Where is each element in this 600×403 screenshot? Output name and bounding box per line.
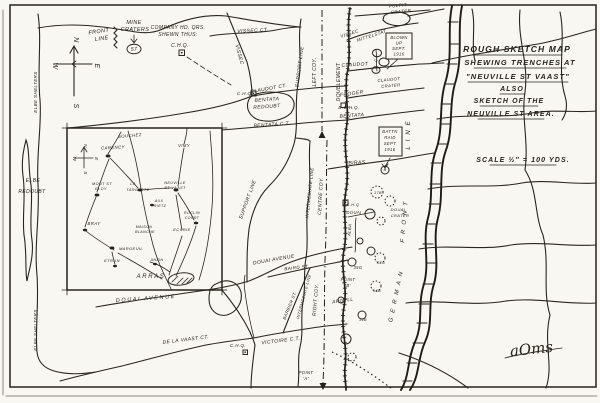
label-inset-roclincourt-2: COURT — [185, 216, 200, 220]
label-inset-maison-blanche-2: BLANCHE — [135, 230, 155, 234]
label-legend-company-hq-1: COMPANY HD. QRS. — [151, 25, 206, 31]
label-battn-raid-1: BATTN — [382, 129, 398, 134]
label-compass-s: S — [72, 103, 79, 108]
label-legend-front-line-2: LINE — [95, 35, 110, 43]
label-compass-n: N — [72, 37, 79, 43]
dotted-track — [332, 352, 393, 390]
label-pulpit-crater-2: CRATER — [390, 8, 411, 15]
label-inset-compass-e: E — [94, 157, 99, 161]
label-inset-compass-s: S — [83, 171, 88, 174]
label-inset-la-targette-2: TARGETTE — [126, 188, 149, 192]
compass-rose — [56, 46, 92, 96]
label-legend-chq: C.H.Q. — [171, 43, 189, 49]
label-inset-vimy: VIMY — [178, 143, 191, 148]
label-chq-douai: C.H.Q — [346, 202, 359, 207]
label-bentata-redoubt-2: REDOUBT — [253, 103, 281, 111]
label-crater-b: B — [383, 167, 386, 172]
label-battn-raid-3: SEPT — [384, 141, 397, 146]
label-crater-34b: 34B — [359, 318, 367, 322]
label-german-line-line: LINE — [406, 116, 412, 149]
label-point-a-2: 'A' — [303, 376, 309, 381]
label-title-2: SHEWING TRENCHES AT — [464, 58, 576, 67]
label-title-4: ALSO — [499, 86, 524, 93]
label-mittelstat: MITTELSTAT — [356, 28, 388, 43]
label-bentata-ct: BENTATA C.T. — [253, 121, 290, 130]
arras-highway — [128, 131, 171, 289]
label-victoire-ct: VICTOIRE C.T. — [261, 336, 301, 347]
label-blown-up-4: 1916 — [394, 52, 405, 57]
elbe-redoubt-outline — [22, 140, 32, 281]
label-inset-maroeuil: MAROEUIL — [119, 246, 143, 251]
label-douai: DOUAI — [346, 210, 362, 215]
label-legend-mine-craters-1: MINE — [126, 20, 141, 26]
label-inset-la-targette-1: LA — [130, 182, 136, 186]
label-inset-bray: BRAY — [88, 221, 102, 226]
enclosure-loop — [209, 281, 241, 315]
label-german-line-german: GERMAN — [388, 267, 406, 323]
label-title-1: ROUGH SKETCH MAP — [463, 44, 571, 54]
label-inset-arras: ARRAS — [136, 274, 166, 280]
label-title-6: NEUVILLE ST AREA. — [467, 111, 555, 118]
label-bentata-front: BENTATA — [339, 112, 364, 120]
label-inset-compass-n: N — [83, 144, 88, 148]
label-inset-compass-w: W — [72, 157, 77, 162]
chq-pointer-dashed — [187, 57, 231, 85]
label-elbe-shelters-1: ELBE SHELTERS — [33, 71, 38, 112]
map-labels: FRONTLINEMINECRATERS57COMPANY HD. QRS.SH… — [18, 2, 576, 381]
label-inset-roclincourt-1: ROCLIN — [184, 211, 200, 215]
label-title-scale: SCALE ½″ = 100 YDS. — [476, 156, 570, 164]
label-inset-neuville-2: ST VAAST — [164, 186, 186, 190]
label-point-b-1: POINT — [341, 277, 356, 282]
label-claudot-crater-2: CRATER — [381, 82, 401, 89]
label-compass-w: W — [51, 62, 58, 70]
coy-boundary-2 — [323, 140, 327, 383]
label-douai-crater-1: DOUAI — [391, 207, 406, 212]
label-inset-souchez: SOUCHEZ — [118, 132, 142, 139]
label-inset-mont-st-eloy-1: MONT ST — [92, 182, 112, 186]
label-inset-anzin: ANZIN — [150, 258, 164, 262]
front-line-sample-squiggle — [114, 27, 117, 48]
label-left-coy: LEFT COY. — [312, 58, 318, 87]
label-douai-avenue-2: DOUAI AVENUE — [253, 253, 296, 266]
inset-map — [62, 123, 227, 295]
label-crater-17b: 17B — [374, 191, 382, 195]
label-legend-crater-57: 57 — [131, 47, 137, 53]
label-crater-37g: 37G — [377, 261, 385, 265]
label-chq-map-1: C.H.Q. — [237, 91, 253, 96]
label-vissec: VISSEC — [233, 44, 244, 66]
mine-crater-arrow — [131, 35, 137, 43]
label-inset-etrun: ETRUN — [104, 258, 120, 263]
label-blown-up-1: BLOWN — [390, 35, 408, 40]
label-elbe-redoubt-2: REDOUBT — [18, 189, 46, 195]
label-douai-avenue-1: DOUAI AVENUE — [116, 294, 177, 304]
label-inset-mont-st-eloy-2: ELOY — [95, 187, 107, 191]
support-line-trench — [247, 19, 301, 282]
label-title-3: "NEUVILLE ST VAAST" — [466, 72, 570, 81]
label-crater-35g: 35G — [353, 265, 362, 270]
label-inset-ecurie: ECURIE — [173, 227, 191, 232]
label-legend-company-hq-2: SHEWN THUS: — [158, 32, 198, 38]
label-blown-up-2: UP — [396, 41, 403, 46]
label-inset-neuville-1: NEUVILLE — [164, 181, 186, 185]
label-blown-up-3: SEPT. — [392, 46, 406, 51]
label-german-line-front: FRONT — [400, 197, 410, 243]
rear-communication-trench — [68, 96, 252, 128]
label-inset-aux-rietz-2: RIETZ — [154, 204, 167, 208]
alba-trench — [355, 218, 356, 252]
label-title-5: SKETCH OF THE — [474, 98, 545, 105]
label-battn-raid-4: 1916 — [385, 147, 396, 152]
left-coy-arrow — [319, 131, 326, 138]
left-trenches — [22, 14, 300, 374]
trench-traverses — [403, 22, 460, 381]
label-inset-carency: CARENCY — [101, 144, 126, 150]
sketch-map-page: FRONTLINEMINECRATERS57COMPANY HD. QRS.SH… — [0, 0, 600, 403]
label-support-line-1: SUPPORT LINE — [295, 46, 306, 88]
label-point-b-2: 'B' — [345, 283, 351, 288]
victoire-ct-trench — [254, 324, 347, 338]
trench-map-canvas: FRONTLINEMINECRATERS57COMPANY HD. QRS.SH… — [0, 0, 600, 403]
label-elbe-redoubt-1: ELBE — [26, 178, 41, 184]
label-inset-maison-blanche-1: MAISON — [136, 225, 153, 229]
label-de-la-vaast-ct: DE LA VAAST CT. — [162, 334, 209, 346]
label-chq-map-2: C.H.Q. — [230, 343, 246, 348]
label-battn-raid-2: RAID — [384, 135, 396, 140]
label-bchq: B.C.H.Q. — [338, 105, 359, 110]
label-support-line-2: SUPPORT LINE — [238, 179, 258, 220]
label-vissec-ct: VISSEC CT. — [237, 27, 269, 35]
label-centre-coy: CENTRE COY. — [317, 177, 325, 215]
label-crater-16b: 16B — [373, 289, 381, 293]
de-la-vaast-ct-trench — [60, 338, 254, 381]
label-intermediate-line-1: INTERMEDIATE LINE — [304, 167, 314, 219]
label-signature: aOms — [509, 338, 554, 360]
label-point-a-1: POINT — [299, 370, 314, 375]
label-elbe-shelters-2: ELBE SHELTERS — [33, 309, 38, 350]
label-alba: ALBA — [346, 224, 352, 238]
label-inset-aux-rietz-1: AUX — [154, 199, 164, 203]
label-claudot: CLAUDOT — [341, 61, 369, 68]
label-legend-mine-craters-2: CRATERS — [121, 27, 150, 33]
label-compass-e: E — [93, 63, 100, 68]
label-biras: BIRAS — [348, 160, 366, 167]
label-right-coy: RIGHT COY. — [312, 283, 321, 316]
label-douai-crater-2: CRATER — [391, 213, 410, 218]
